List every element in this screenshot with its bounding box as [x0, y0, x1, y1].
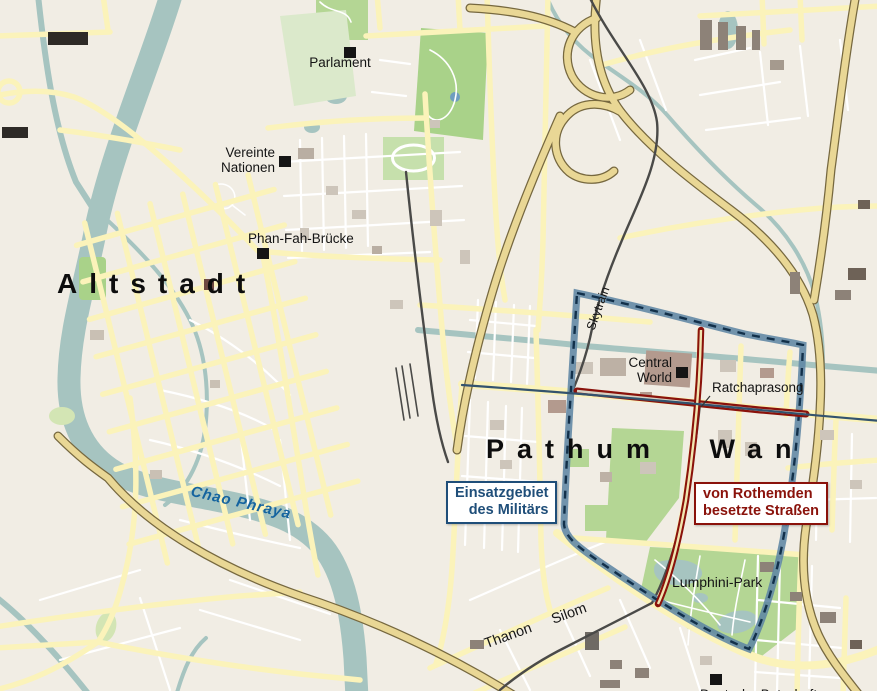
- poi-label-ratchaprasong: Ratchaprasong: [712, 380, 804, 395]
- district-label-pathum-wan: Pathum Wan: [486, 434, 805, 464]
- poi-label-vereinte-nationen: Vereinte Nationen: [215, 145, 275, 175]
- deutsche-botschaft-marker: [710, 674, 722, 685]
- poi-label-lumphini: Lumphini-Park: [672, 575, 762, 591]
- legend-military-area: Einsatzgebiet des Militärs: [446, 481, 557, 524]
- poi-label-phan-fah: Phan-Fah-Brücke: [248, 231, 354, 246]
- vereinte-nationen-marker: [279, 156, 291, 167]
- district-label-altstadt: Altstadt: [57, 268, 257, 299]
- map-canvas[interactable]: Altstadt Pathum Wan Parlament Vereinte N…: [0, 0, 877, 691]
- central-world-marker: [676, 367, 688, 378]
- poi-label-parlament: Parlament: [305, 55, 375, 70]
- legend-redshirt-streets: von Rothemden besetzte Straßen: [694, 482, 828, 525]
- poi-label-deutsche-botschaft: Deutsche Botschaft: [700, 687, 817, 691]
- poi-label-central-world: Central World: [626, 355, 672, 385]
- phan-fah-marker: [257, 248, 269, 259]
